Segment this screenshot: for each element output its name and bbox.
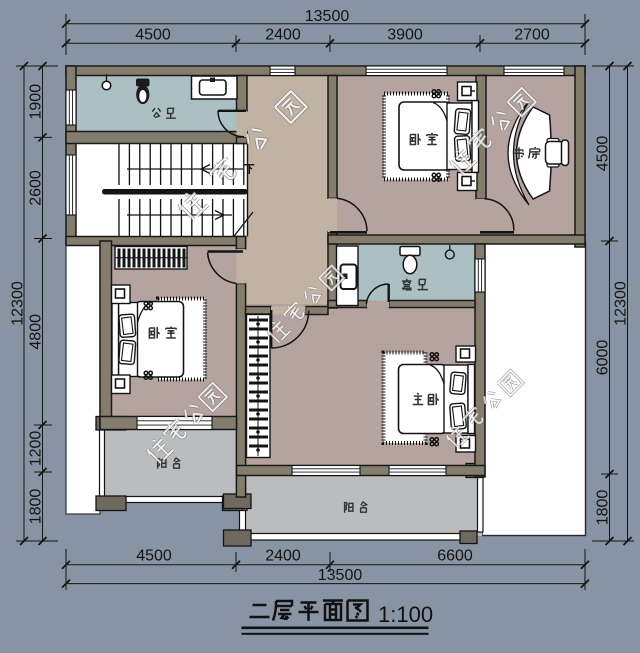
svg-text:4500: 4500 (135, 26, 171, 43)
svg-text:13500: 13500 (318, 567, 363, 584)
svg-text:3900: 3900 (387, 26, 423, 43)
svg-text:6000: 6000 (595, 340, 612, 376)
svg-text:4500: 4500 (136, 548, 172, 565)
svg-text:1:100: 1:100 (378, 602, 433, 627)
svg-text:2700: 2700 (514, 26, 550, 43)
svg-text:2400: 2400 (265, 26, 301, 43)
svg-text:12300: 12300 (10, 281, 27, 326)
svg-text:4800: 4800 (28, 314, 45, 350)
svg-text:1200: 1200 (28, 431, 45, 467)
svg-text:1800: 1800 (28, 489, 45, 525)
svg-text:1800: 1800 (595, 490, 612, 526)
svg-text:6600: 6600 (437, 548, 473, 565)
svg-text:12300: 12300 (613, 281, 630, 326)
svg-text:13500: 13500 (305, 8, 350, 25)
svg-text:1900: 1900 (28, 84, 45, 120)
svg-text:2600: 2600 (28, 170, 45, 206)
svg-text:4500: 4500 (595, 136, 612, 172)
svg-text:2400: 2400 (265, 548, 301, 565)
